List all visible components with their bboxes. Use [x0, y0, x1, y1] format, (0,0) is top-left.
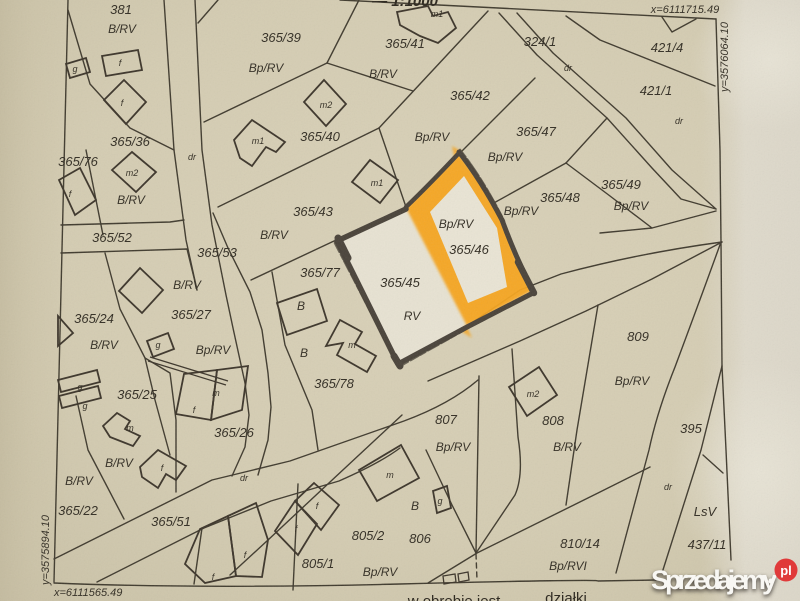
- svg-text:Sprzedajemy: Sprzedajemy: [651, 565, 777, 595]
- svg-text:pl: pl: [780, 563, 792, 578]
